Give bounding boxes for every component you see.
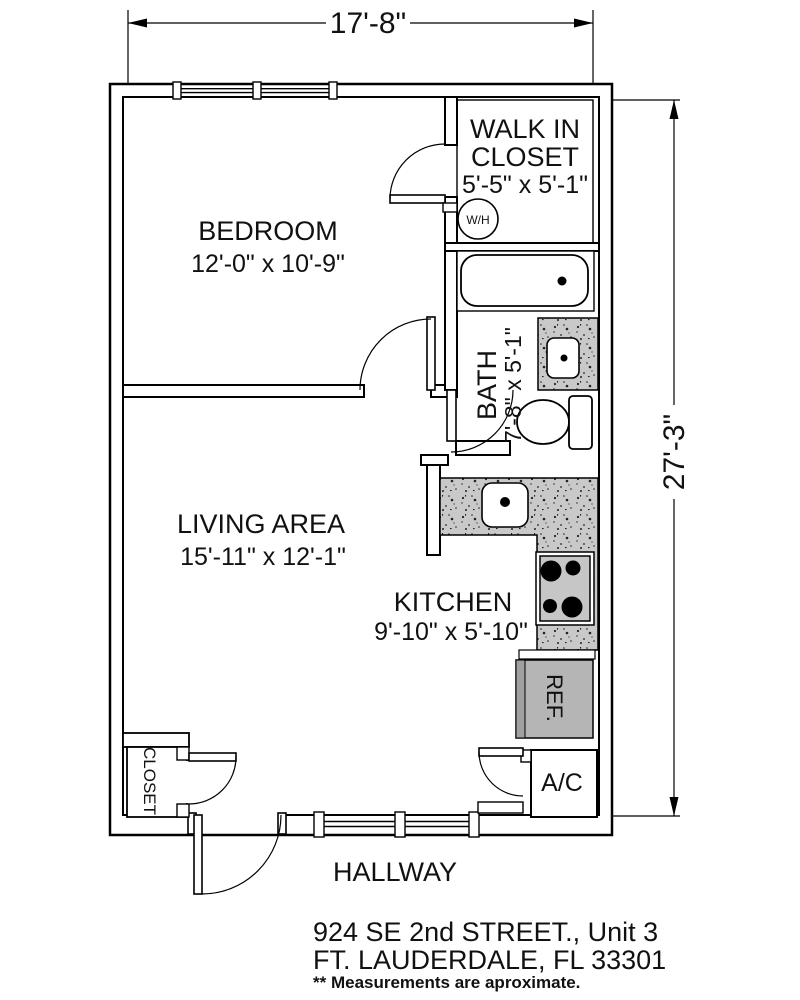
counter-end-trim bbox=[519, 650, 595, 659]
entry-door bbox=[188, 813, 286, 894]
walk-in-closet-label-line2: CLOSET bbox=[471, 142, 579, 172]
ac-door-leaf bbox=[479, 748, 523, 756]
address-line-2: FT. LAUDERDALE, FL 33301 bbox=[313, 945, 666, 975]
entry-door-leaf bbox=[194, 815, 202, 894]
measurement-disclaimer: ** Measurements are aproximate. bbox=[313, 973, 580, 992]
refrigerator-door-edge bbox=[516, 660, 525, 738]
hall-closet-door-leaf bbox=[189, 753, 236, 761]
floor-plan-page: 17'-8" 27'-3" BEDROOM 12'-0" x 10'-9" WA… bbox=[0, 0, 800, 1000]
living-area-label: LIVING AREA bbox=[177, 509, 345, 539]
stove-burner bbox=[543, 599, 557, 613]
walk-in-closet-label-line1: WALK IN bbox=[470, 114, 580, 144]
tub-drain bbox=[558, 277, 567, 286]
bedroom-label: BEDROOM bbox=[198, 216, 338, 246]
dim-arrow-top bbox=[670, 100, 679, 119]
bedroom-door-leaf bbox=[427, 317, 435, 390]
bedroom-bath-wall bbox=[445, 197, 457, 390]
dim-arrow-right bbox=[574, 19, 593, 28]
kitchen-peninsula-wall bbox=[427, 465, 440, 555]
bedroom-dims: 12'-0" x 10'-9" bbox=[191, 250, 345, 278]
water-heater-label: W/H bbox=[466, 213, 489, 227]
stove-burner bbox=[541, 561, 562, 582]
bedroom-door-arc bbox=[360, 319, 431, 390]
ac-stub-wall bbox=[478, 802, 523, 813]
bath-door-leaf bbox=[447, 390, 456, 441]
overall-width-dimension: 17'-8" bbox=[330, 7, 406, 40]
closet-bath-wall bbox=[445, 243, 599, 251]
hallway-label: HALLWAY bbox=[333, 857, 457, 887]
bedroom-door bbox=[360, 317, 435, 390]
address-line-1: 924 SE 2nd STREET., Unit 3 bbox=[313, 917, 658, 947]
toilet-tank bbox=[569, 396, 592, 449]
bathtub bbox=[461, 255, 588, 306]
walk-in-closet-dims: 5'-5" x 5'-1" bbox=[462, 171, 588, 199]
closet-partition-stub bbox=[445, 97, 457, 145]
refrigerator-label: REF. bbox=[542, 674, 567, 722]
hall-closet-top-wall bbox=[123, 733, 189, 747]
bedroom-south-wall bbox=[123, 385, 364, 397]
dim-arrow-left bbox=[128, 19, 147, 28]
floor-plan-drawing: 17'-8" 27'-3" BEDROOM 12'-0" x 10'-9" WA… bbox=[0, 0, 800, 1000]
hall-closet-door-arc bbox=[189, 757, 236, 804]
hall-closet bbox=[123, 733, 236, 817]
title-block: 924 SE 2nd STREET., Unit 3 FT. LAUDERDAL… bbox=[313, 917, 666, 992]
living-area-dims: 15'-11" x 12'-1" bbox=[180, 543, 346, 571]
ac-label: A/C bbox=[541, 769, 583, 797]
stove-burner bbox=[566, 561, 581, 576]
kitchen-wall-step bbox=[421, 455, 448, 465]
vanity-sink-drain bbox=[561, 355, 568, 362]
kitchen-dims: 9'-10" x 5'-10" bbox=[374, 618, 528, 646]
kitchen-sink-drain bbox=[500, 497, 510, 507]
bath-dims: 7'-8" x 5'-1" bbox=[500, 327, 526, 443]
hall-closet-label: CLOSET bbox=[140, 747, 159, 815]
overall-height-dimension: 27'-3" bbox=[658, 414, 691, 490]
stove-burner bbox=[562, 597, 583, 618]
kitchen-label: KITCHEN bbox=[394, 587, 513, 617]
walk-in-closet-door-leaf bbox=[390, 195, 445, 203]
ac-door-arc bbox=[479, 752, 523, 796]
bath-label: BATH bbox=[472, 350, 502, 420]
walk-in-closet-door-arc bbox=[390, 144, 445, 199]
dim-arrow-bottom bbox=[670, 797, 679, 816]
